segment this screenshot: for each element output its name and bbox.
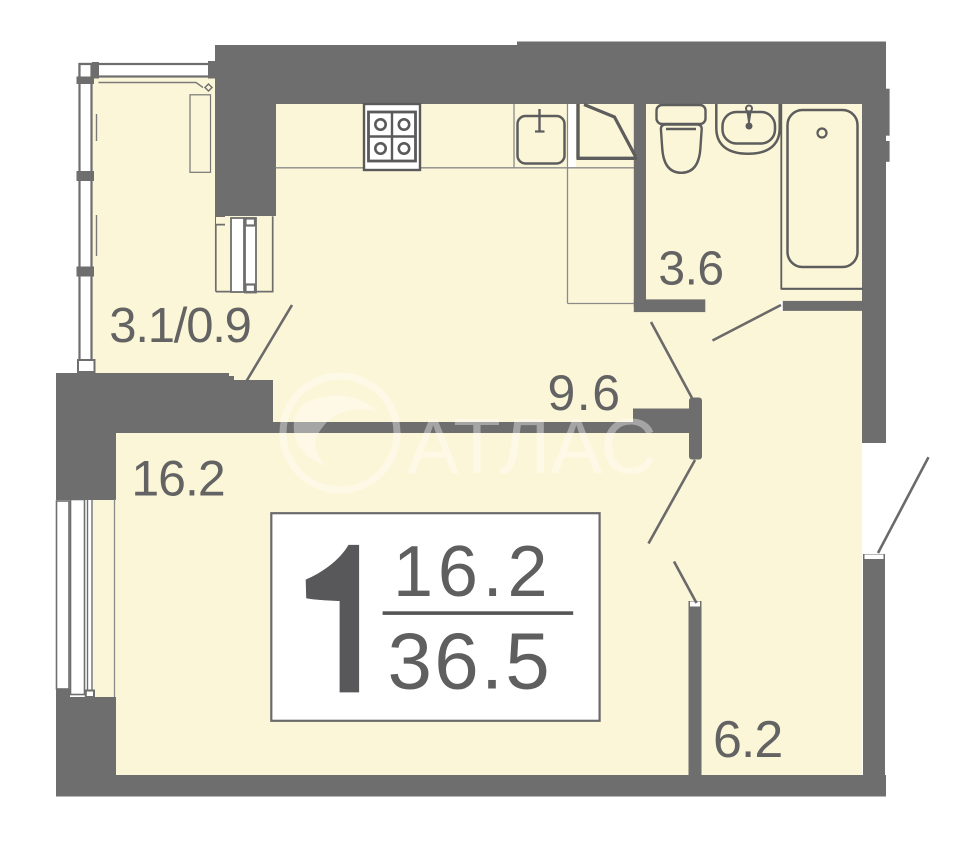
svg-text:36.5: 36.5 bbox=[388, 617, 553, 706]
svg-text:3.1/0.9: 3.1/0.9 bbox=[109, 299, 250, 353]
svg-text:16.2: 16.2 bbox=[393, 532, 552, 612]
svg-text:3.6: 3.6 bbox=[658, 243, 723, 296]
svg-text:9.6: 9.6 bbox=[548, 365, 622, 421]
svg-text:6.2: 6.2 bbox=[713, 711, 782, 769]
svg-text:16.2: 16.2 bbox=[131, 451, 224, 507]
